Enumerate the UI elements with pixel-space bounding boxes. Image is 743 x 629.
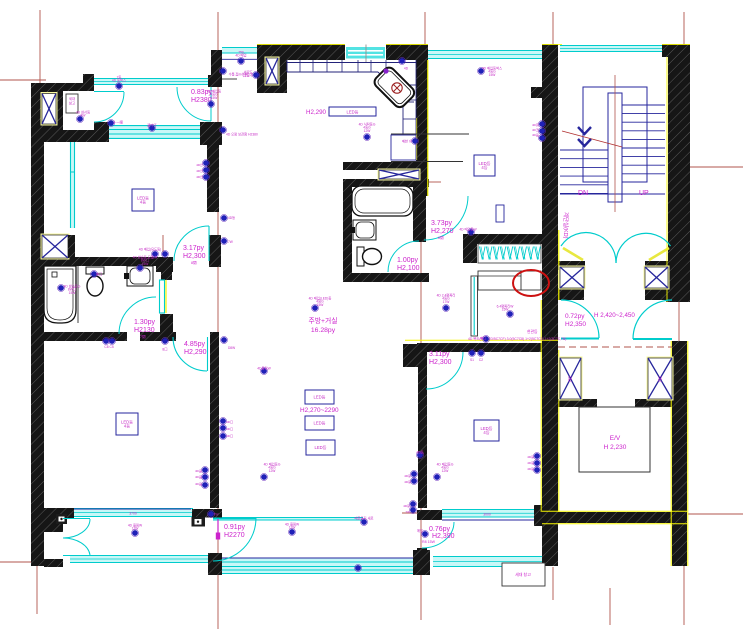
svg-text:문: 문 (658, 377, 663, 383)
svg-text:4등: 4등 (140, 200, 146, 205)
svg-text:4D 매입: 4D 매입 (235, 53, 246, 58)
svg-text:LED등: LED등 (347, 110, 359, 115)
svg-text:3000: 3000 (483, 513, 491, 517)
svg-text:계단실(KD): 계단실(KD) (562, 212, 570, 239)
svg-text:4D 오랑 보관함 H2380: 4D 오랑 보관함 H2380 (226, 131, 258, 136)
svg-text:4D五: 4D五 (532, 128, 539, 132)
svg-text:12W: 12W (442, 469, 450, 473)
svg-text:4D口: 4D口 (226, 420, 233, 424)
svg-text:C2: C2 (479, 358, 483, 362)
svg-text:4등: 4등 (481, 165, 487, 170)
svg-text:8口: 8口 (162, 347, 167, 351)
svg-text:매口: 매口 (480, 335, 486, 340)
svg-text:매입: 매입 (417, 528, 423, 533)
svg-text:12W: 12W (289, 526, 297, 530)
svg-text:0.72py: 0.72py (565, 313, 585, 320)
svg-text:S1: S1 (470, 358, 474, 362)
svg-text:3.17py: 3.17py (183, 245, 205, 252)
svg-text:4D 매입(유도등): 4D 매입(유도등) (139, 246, 162, 251)
svg-text:通中주: 通中주 (147, 122, 157, 127)
svg-text:DN: DN (578, 190, 588, 197)
svg-text:12W: 12W (269, 469, 277, 473)
svg-text:4D안: 4D안 (196, 168, 203, 173)
svg-text:4D등: 4D등 (403, 504, 410, 508)
svg-text:LED등: LED등 (314, 394, 326, 399)
svg-text:LED등: LED등 (315, 445, 327, 450)
svg-text:4D品: 4D品 (532, 133, 539, 137)
svg-text:4D올림W: 4D올림W (257, 365, 271, 370)
svg-text:매한 众: 매한 众 (402, 138, 413, 143)
svg-text:8閉: 8閉 (191, 260, 197, 265)
svg-text:4D: 4D (404, 66, 409, 70)
svg-text:8閉: 8閉 (438, 235, 444, 240)
svg-text:4D品: 4D品 (416, 450, 424, 454)
svg-text:7W: 7W (405, 510, 410, 514)
svg-text:4D등: 4D등 (404, 474, 411, 478)
svg-text:창고: 창고 (69, 101, 75, 106)
svg-text:4D등: 4D등 (527, 467, 534, 471)
svg-text:1.30py: 1.30py (134, 319, 156, 326)
svg-text:D8W: D8W (228, 346, 235, 350)
svg-text:3700: 3700 (129, 512, 137, 516)
svg-text:H2270: H2270 (224, 532, 245, 539)
svg-text:4D등: 4D등 (404, 480, 411, 484)
svg-text:12W: 12W (132, 527, 140, 531)
svg-text:12W: 12W (364, 129, 372, 133)
svg-text:16.28py: 16.28py (311, 327, 336, 334)
svg-text:H 2,420~2,450: H 2,420~2,450 (594, 312, 635, 319)
svg-text:H2,350: H2,350 (565, 321, 586, 328)
svg-text:15W: 15W (142, 262, 150, 266)
svg-text:4D克: 4D克 (532, 122, 539, 127)
svg-text:7閉: 7閉 (140, 334, 146, 339)
svg-text:주방+거실: 주방+거실 (309, 316, 338, 325)
svg-text:UP: UP (639, 190, 649, 197)
svg-text:7W: 7W (228, 240, 233, 244)
svg-text:4D 등박스: 4D 등박스 (112, 78, 126, 83)
svg-text:8W: 8W (81, 114, 87, 118)
svg-text:4D品: 4D品 (195, 482, 202, 486)
svg-text:4D品: 4D品 (195, 469, 202, 473)
svg-text:3.11py: 3.11py (429, 351, 450, 358)
svg-text:세대 창고: 세대 창고 (515, 571, 531, 577)
svg-text:H2130: H2130 (134, 327, 155, 334)
svg-text:C8 C5: C8 C5 (104, 345, 114, 349)
svg-text:현관등: 현관등 (527, 329, 538, 334)
svg-text:4D등: 4D등 (527, 455, 534, 459)
svg-text:4D안: 4D안 (196, 174, 203, 179)
svg-text:15W: 15W (489, 73, 497, 77)
svg-text:매口: 매口 (96, 271, 102, 276)
svg-text:7W: 7W (214, 512, 220, 516)
svg-text:H2,100: H2,100 (397, 265, 420, 272)
svg-text:H2,270~2290: H2,270~2290 (300, 407, 339, 414)
svg-text:E/V: E/V (610, 435, 621, 442)
svg-text:17W: 17W (443, 300, 451, 304)
svg-text:H2,300: H2,300 (183, 253, 206, 260)
svg-text:15W: 15W (211, 96, 219, 100)
svg-text:4D등: 4D등 (527, 461, 534, 465)
svg-text:15W: 15W (317, 303, 325, 307)
svg-text:세대: 세대 (69, 96, 75, 101)
svg-text:H2,290: H2,290 (306, 109, 327, 116)
svg-text:15W: 15W (69, 291, 77, 295)
svg-text:4D品: 4D品 (195, 475, 202, 479)
svg-text:H2,290: H2,290 (184, 349, 207, 356)
svg-text:4등: 4등 (483, 430, 489, 435)
svg-text:具聖不: 具聖不 (243, 73, 254, 78)
svg-text:매운둥지 새로: 매운둥지 새로 (354, 515, 373, 520)
svg-text:문: 문 (568, 377, 573, 383)
svg-text:4D口: 4D口 (226, 434, 233, 438)
svg-text:H2,270: H2,270 (431, 228, 454, 235)
svg-text:0.91py: 0.91py (224, 524, 246, 531)
svg-text:4.85py: 4.85py (184, 341, 206, 348)
svg-text:1.00py: 1.00py (397, 257, 419, 264)
svg-text:15W: 15W (502, 308, 510, 312)
svg-text:十一眼: 十一眼 (113, 119, 124, 124)
svg-text:4D口: 4D口 (226, 427, 233, 431)
svg-text:R8 15W: R8 15W (422, 540, 436, 544)
svg-text:0.76py: 0.76py (429, 526, 451, 533)
svg-text:H 2,230: H 2,230 (604, 444, 627, 451)
svg-text:3.73py: 3.73py (431, 220, 453, 227)
svg-text:4등: 4등 (124, 424, 130, 429)
svg-text:H2,300: H2,300 (429, 359, 452, 366)
svg-text:4D안: 4D안 (196, 162, 203, 167)
svg-text:H2,390: H2,390 (432, 533, 455, 540)
svg-text:4D등: 4D등 (228, 216, 235, 220)
svg-text:LED등: LED등 (314, 420, 326, 425)
svg-text:4D 매입등W: 4D 매입등W (459, 226, 477, 231)
